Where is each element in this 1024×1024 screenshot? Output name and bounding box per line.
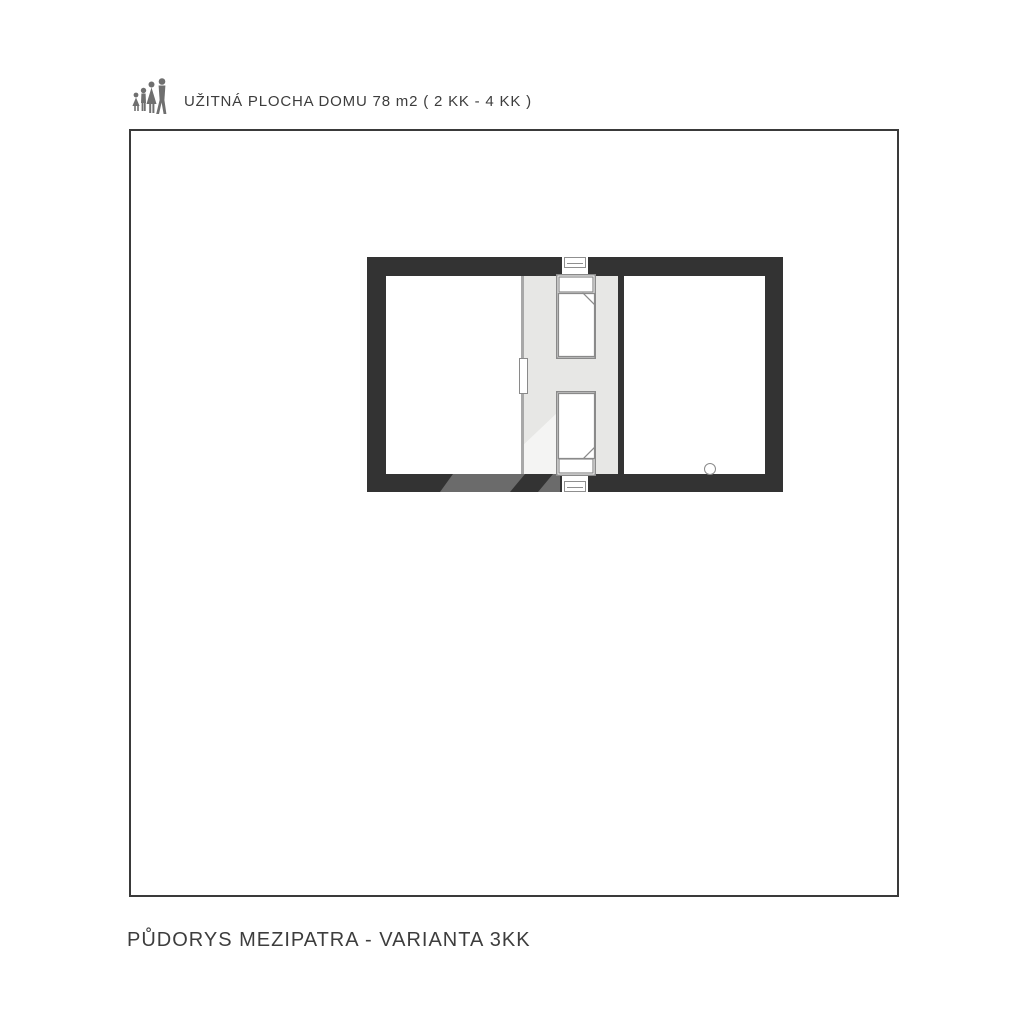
page-title: UŽITNÁ PLOCHA DOMU 78 m2 ( 2 KK - 4 KK ): [184, 93, 532, 110]
family-icon: [129, 76, 173, 118]
drawing-frame: [129, 129, 899, 897]
bed-top: [556, 274, 596, 359]
window-mullion: [567, 263, 583, 264]
window-bottom-symbol: [564, 481, 586, 492]
window-mullion: [567, 487, 583, 488]
room-right: [624, 276, 765, 474]
window-top-symbol: [564, 257, 586, 268]
floorplan-caption: PŮDORYS MEZIPATRA - VARIANTA 3KK: [127, 929, 531, 952]
door-leaf: [519, 358, 528, 394]
bed-bottom: [556, 391, 596, 476]
room-left: [386, 276, 521, 474]
page: UŽITNÁ PLOCHA DOMU 78 m2 ( 2 KK - 4 KK ): [0, 0, 1024, 1024]
window-bottom: [562, 474, 588, 492]
drain-circle: [704, 463, 716, 475]
